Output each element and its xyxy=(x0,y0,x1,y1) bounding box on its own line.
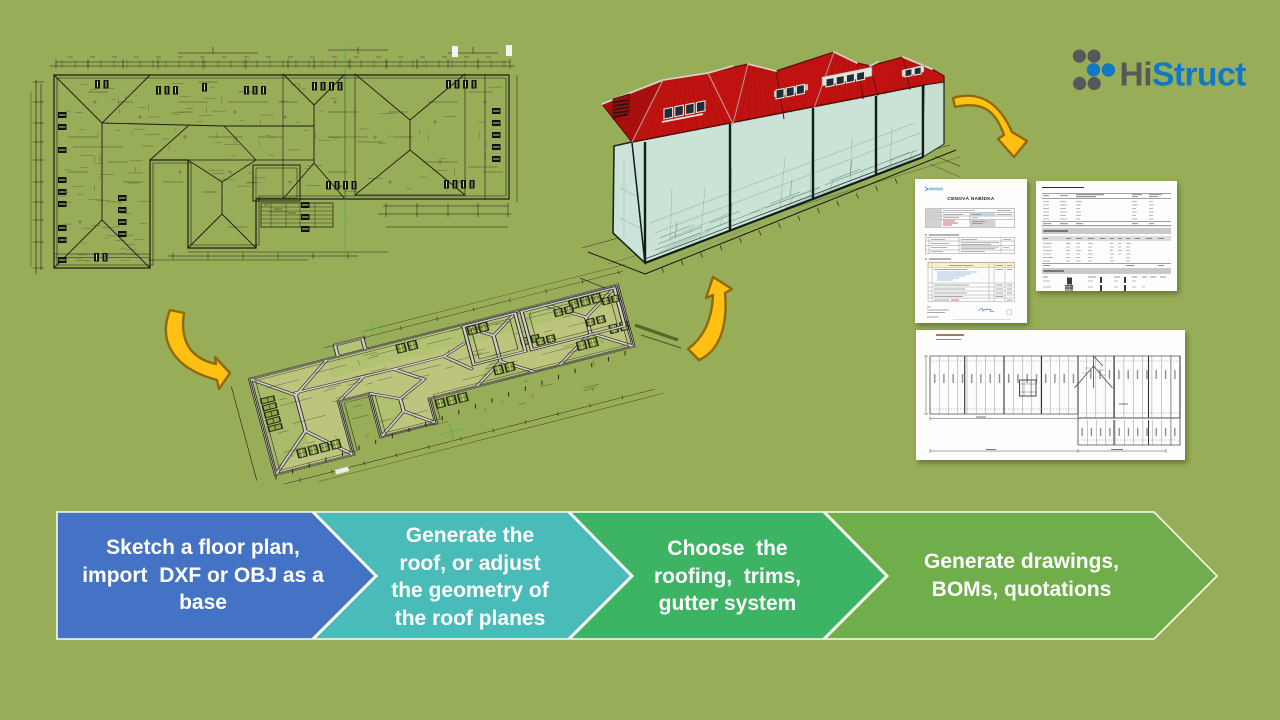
svg-text:HiStruct: HiStruct xyxy=(1120,57,1247,94)
svg-text:CENOVÁ NABÍDKA: CENOVÁ NABÍDKA xyxy=(947,194,994,201)
